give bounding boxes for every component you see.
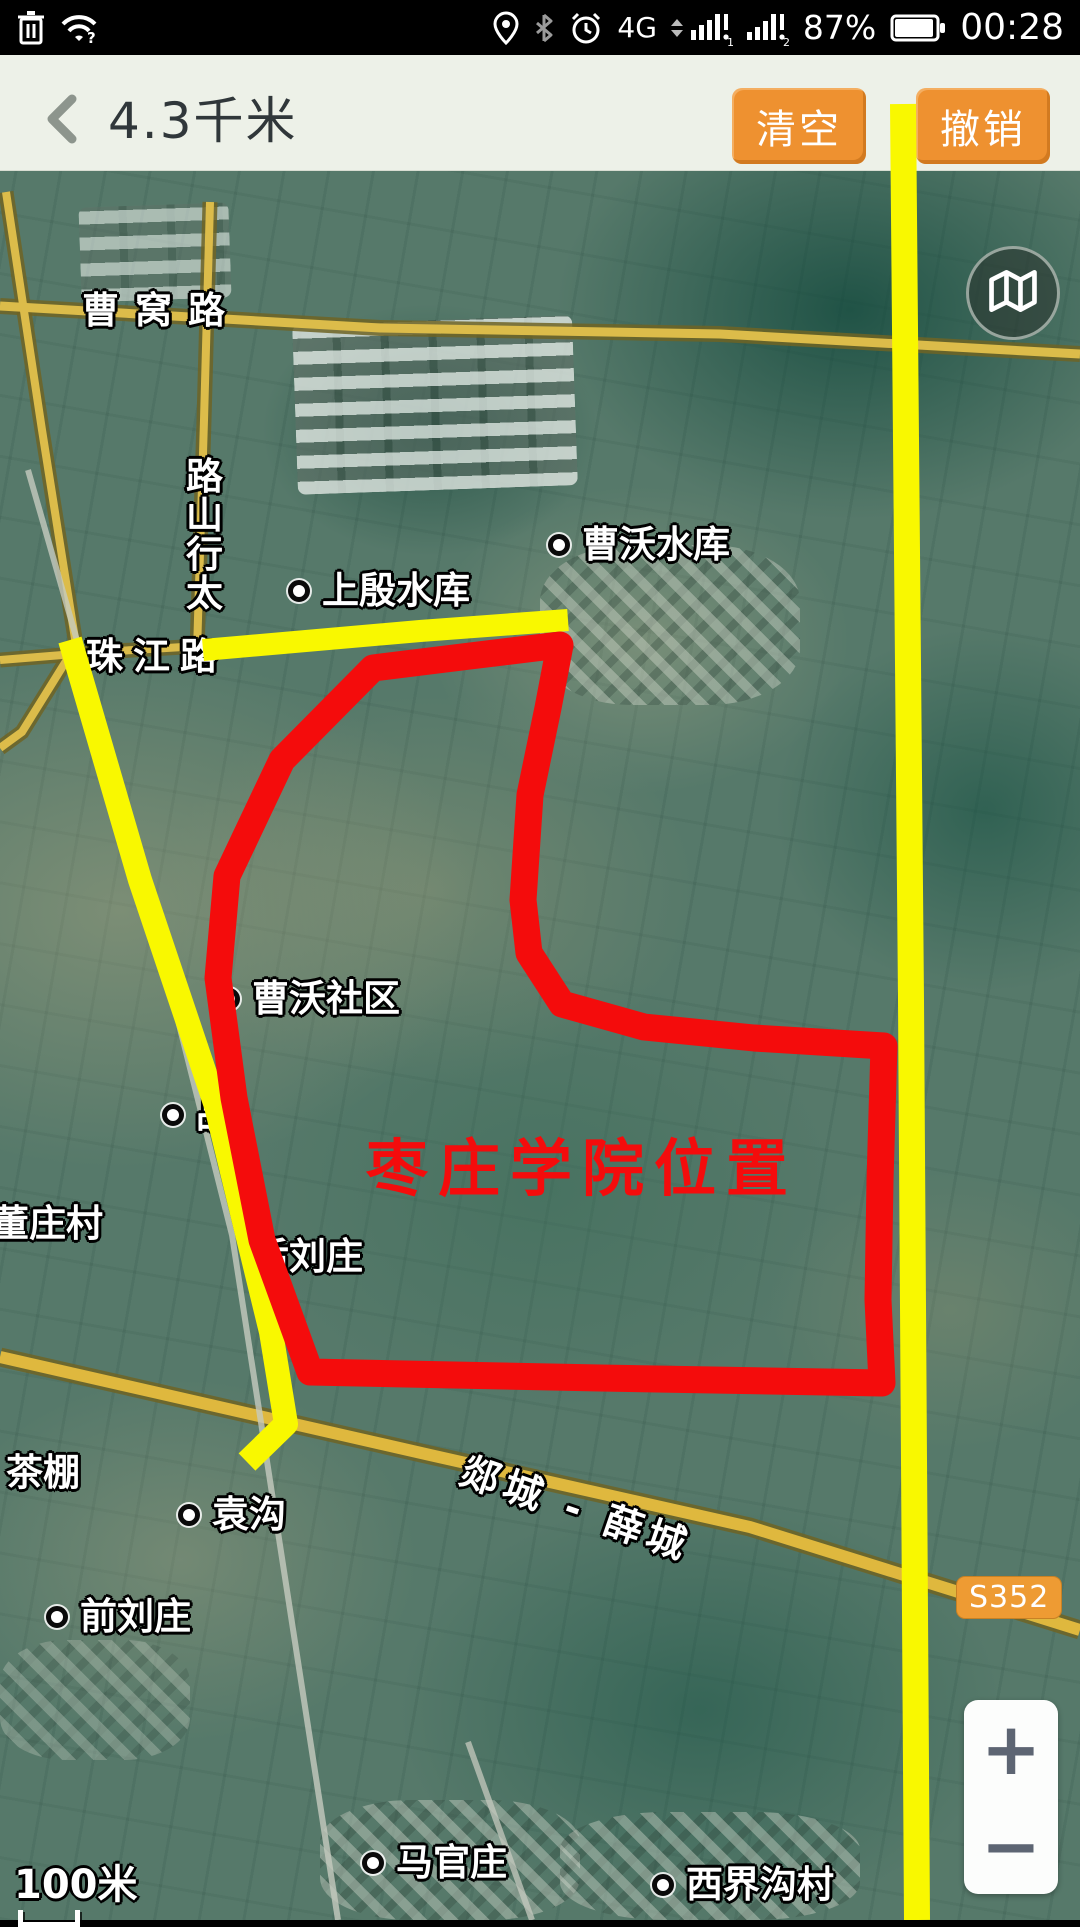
data-arrows-icon [671, 19, 683, 37]
svg-text:1: 1 [727, 36, 733, 46]
bluetooth-icon [533, 13, 555, 43]
status-bar: ? 4G 1 [0, 0, 1080, 55]
yuangou-label: 袁沟 [178, 1496, 286, 1535]
location-icon [493, 11, 519, 45]
zoom-out-button[interactable]: − [964, 1797, 1058, 1894]
scale-bar [18, 1910, 80, 1927]
taihangshan-road-label: 路山行太 [186, 458, 230, 613]
caowo-reservoir-label: 曹沃水库 [548, 526, 730, 565]
maguanzhuang-label: 马官庄 [362, 1844, 507, 1883]
trash-icon [16, 10, 46, 46]
poi-dot [652, 1874, 674, 1896]
satellite-texture-buildings [292, 315, 578, 495]
signal-bars-sim2-icon: 2 [747, 10, 789, 46]
clear-button[interactable]: 清空 [732, 88, 866, 164]
zhujiang-road-label: 珠江路 [86, 638, 227, 677]
svg-text:?: ? [87, 29, 96, 44]
shangyin-reservoir-label: 上殷水库 [288, 572, 470, 611]
map-type-button[interactable] [966, 246, 1060, 340]
dongzhuang-village-label: 董庄村 [0, 1205, 103, 1244]
red-annotation-text: 枣庄学院位置 [366, 1118, 798, 1208]
back-button[interactable] [44, 93, 80, 145]
satellite-texture-buildings [78, 202, 231, 302]
map-layers-icon [985, 267, 1041, 319]
poi-dot [288, 580, 310, 602]
chapeng-label: 茶棚 [6, 1454, 80, 1493]
battery-icon [890, 13, 946, 43]
poi-dot [178, 1504, 200, 1526]
measured-distance-title: 4.3千米 [108, 81, 298, 153]
undo-button[interactable]: 撤销 [916, 88, 1050, 164]
zoom-in-button[interactable]: + [964, 1700, 1058, 1797]
zoom-control: + − [964, 1700, 1058, 1894]
signal-bars-sim1-icon: 1 [691, 10, 733, 46]
satellite-texture-village [540, 545, 800, 705]
battery-percent-label: 87% [803, 0, 876, 55]
xijiegou-village-label: 西界沟村 [652, 1866, 834, 1905]
poi-dot [218, 988, 240, 1010]
app-header: 4.3千米 清空 撤销 [0, 55, 1080, 171]
satellite-texture-village [0, 1640, 190, 1760]
map-scale: 100米 [14, 1852, 138, 1927]
caowo-road-label: 曹窝路 [82, 292, 241, 331]
poi-dot [548, 534, 570, 556]
poi-dot [46, 1606, 68, 1628]
partial-village-label: 品 [162, 1096, 233, 1135]
qianliuzhuang-label: 前刘庄 [46, 1598, 191, 1637]
caowo-community-label: 曹沃社区 [218, 980, 400, 1019]
svg-text:2: 2 [783, 36, 789, 46]
alarm-clock-icon [569, 11, 603, 45]
scale-text: 100米 [14, 1852, 138, 1910]
poi-dot [362, 1852, 384, 1874]
network-type-label: 4G [617, 0, 657, 55]
route-number-badge: S352 [956, 1576, 1062, 1619]
clock-time-label: 00:28 [960, 0, 1064, 55]
wifi-question-icon: ? [60, 12, 100, 44]
houliuzhuang-label: 后刘庄 [252, 1238, 363, 1277]
poi-dot [162, 1104, 184, 1126]
